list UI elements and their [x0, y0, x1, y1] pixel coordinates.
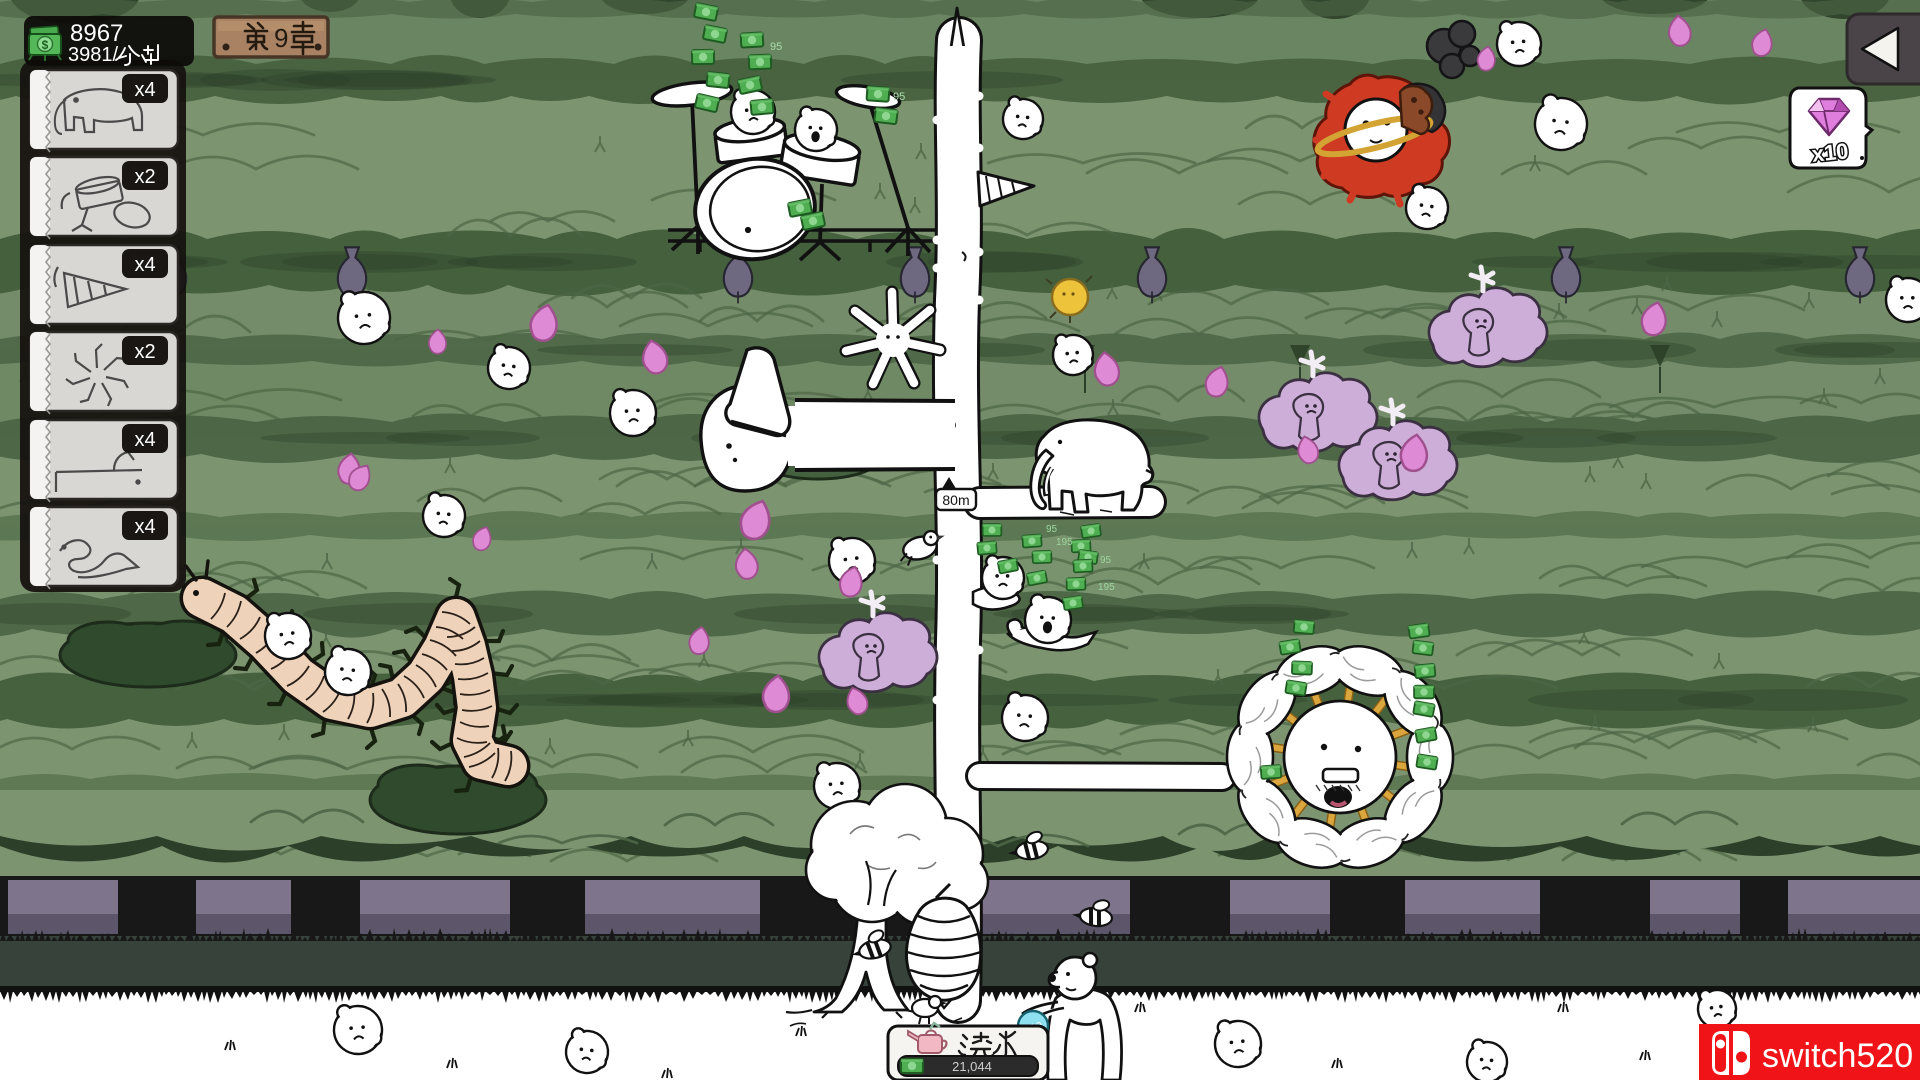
svg-text:x2: x2 [134, 341, 155, 363]
svg-text:x10: x10 [1810, 138, 1849, 167]
svg-text:x4: x4 [134, 79, 155, 101]
svg-text:95: 95 [1046, 524, 1058, 535]
svg-text:x4: x4 [134, 516, 155, 538]
svg-text:9: 9 [274, 23, 288, 53]
svg-text:195: 195 [1098, 582, 1115, 593]
svg-text:80m: 80m [942, 492, 969, 508]
svg-text:95: 95 [770, 41, 782, 53]
svg-text:8967: 8967 [70, 20, 123, 47]
svg-text:195: 195 [1056, 537, 1073, 548]
svg-text:$: $ [42, 38, 49, 52]
svg-text:21,044: 21,044 [952, 1059, 992, 1074]
svg-text:95: 95 [893, 91, 905, 103]
svg-text:x2: x2 [134, 166, 155, 188]
svg-text:switch520: switch520 [1762, 1037, 1913, 1075]
svg-text:3981/: 3981/ [68, 44, 118, 66]
svg-text:x4: x4 [134, 429, 155, 451]
svg-text:x4: x4 [134, 254, 155, 276]
svg-text:95: 95 [1100, 555, 1112, 566]
